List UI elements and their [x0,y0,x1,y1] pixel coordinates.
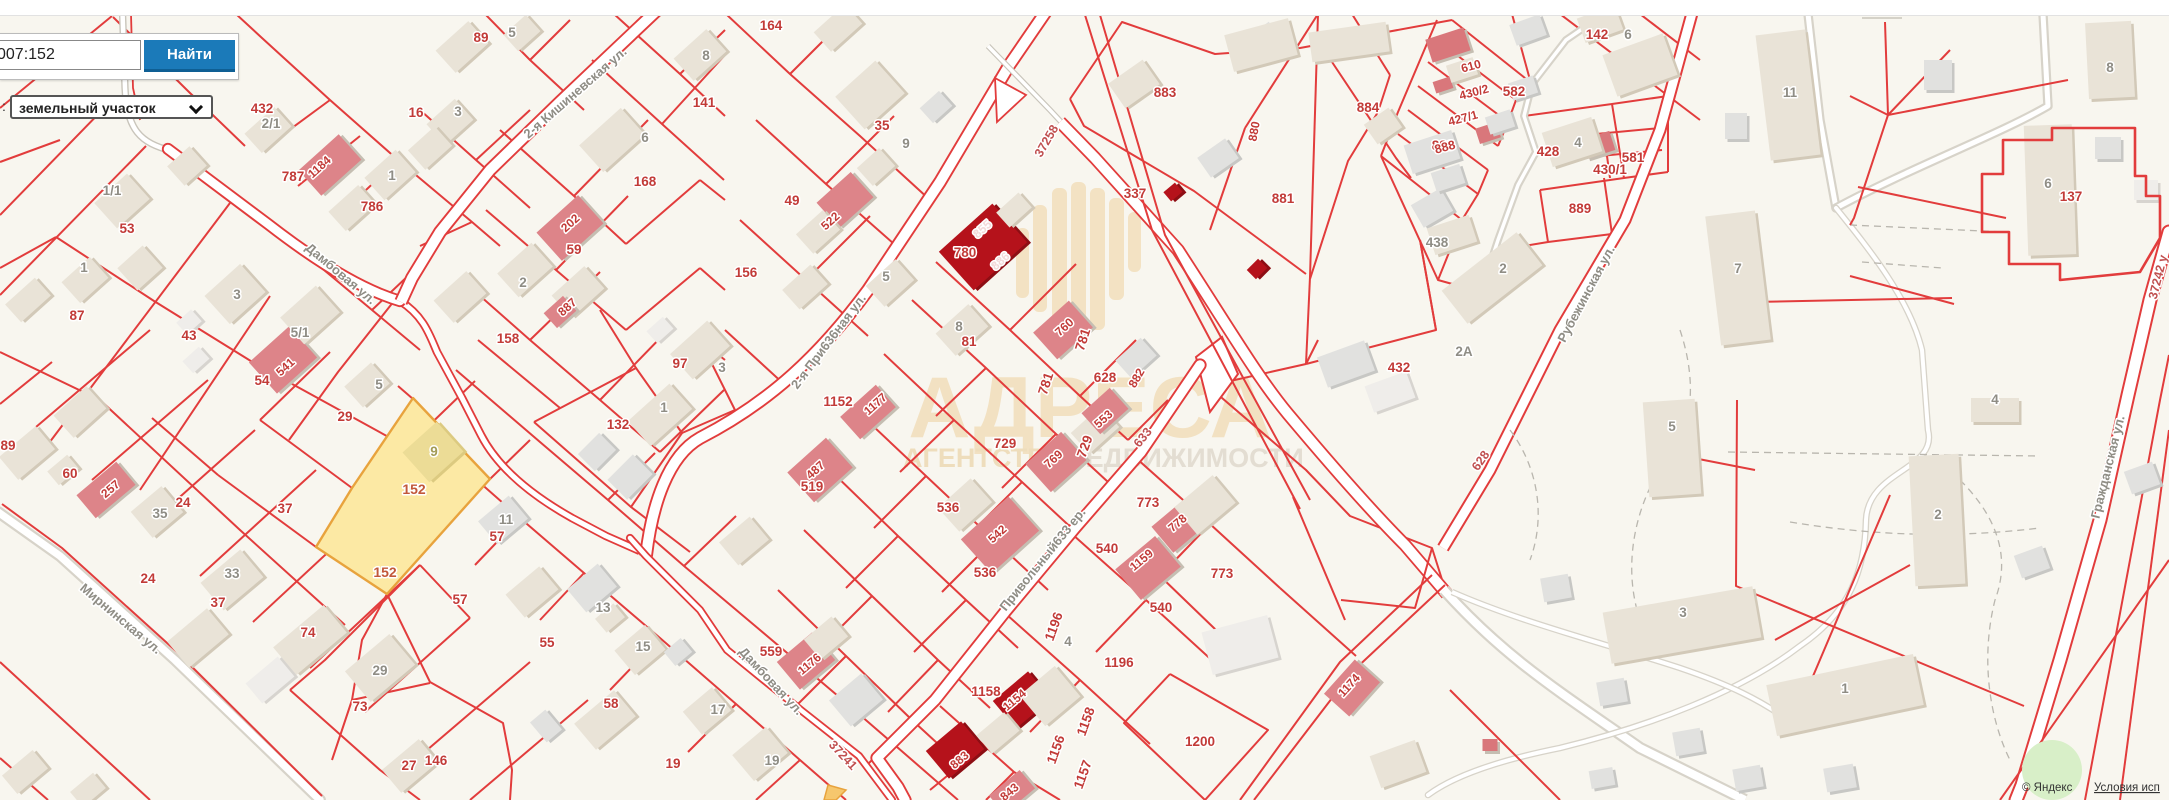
svg-text:89: 89 [0,438,15,453]
svg-text:15: 15 [635,639,651,654]
svg-text:3: 3 [454,104,462,119]
svg-text:87: 87 [69,308,84,323]
svg-text:29: 29 [337,409,352,424]
svg-text:81: 81 [961,334,977,349]
svg-text:1152: 1152 [823,394,852,409]
svg-text:49: 49 [784,193,799,208]
svg-text:3: 3 [718,360,726,375]
svg-text:8: 8 [2106,60,2114,75]
svg-text:2: 2 [1499,261,1507,276]
svg-text:5: 5 [882,269,890,284]
svg-text:582: 582 [1503,84,1526,99]
svg-text:57: 57 [452,592,467,607]
svg-text:132: 132 [607,417,630,432]
svg-text:6: 6 [1624,27,1632,42]
svg-text:24: 24 [175,495,191,510]
svg-text:152: 152 [402,481,426,497]
svg-text:729: 729 [994,436,1017,451]
svg-text:1: 1 [1841,681,1849,696]
svg-text:Условия исп: Условия исп [2094,782,2160,794]
svg-text:137: 137 [2060,189,2083,204]
svg-text:1: 1 [80,260,88,275]
svg-text:60: 60 [62,466,77,481]
svg-text:1: 1 [388,168,396,183]
svg-text:146: 146 [425,753,448,768]
svg-text:884: 884 [1357,100,1380,115]
svg-text:17: 17 [710,702,725,717]
svg-text:1: 1 [660,400,668,415]
svg-text:432: 432 [251,101,274,116]
svg-text:4: 4 [1064,634,1072,649]
svg-text:430/1: 430/1 [1593,162,1627,177]
svg-text:89: 89 [473,30,488,45]
svg-text:536: 536 [974,565,997,580]
svg-text:3: 3 [1679,605,1687,620]
svg-text:19: 19 [665,756,680,771]
svg-text:883: 883 [1154,85,1177,100]
svg-text:780: 780 [954,245,977,260]
svg-text:35: 35 [874,118,890,133]
svg-text:33: 33 [224,566,240,581]
svg-text:8: 8 [702,48,710,63]
svg-text:2: 2 [1934,507,1942,522]
svg-text:11: 11 [1783,85,1798,100]
svg-text:158: 158 [497,331,520,346]
svg-text:881: 881 [1272,191,1295,206]
svg-text:438: 438 [1426,235,1449,250]
svg-text:628: 628 [1094,370,1117,385]
svg-text:152: 152 [373,564,397,580]
svg-text:432: 432 [1388,360,1411,375]
svg-text:4: 4 [1574,135,1582,150]
svg-text:2A: 2A [1455,344,1473,359]
svg-text:9: 9 [902,136,910,151]
svg-text:773: 773 [1137,495,1160,510]
svg-text:11: 11 [499,512,514,527]
svg-text:3: 3 [233,287,241,302]
svg-text:6: 6 [641,130,649,145]
svg-text:24: 24 [140,571,156,586]
svg-text:53: 53 [119,221,135,236]
svg-text:1158: 1158 [971,684,1001,699]
svg-text:164: 164 [760,18,783,33]
svg-text:7: 7 [1734,261,1742,276]
svg-text:2/1: 2/1 [262,116,281,131]
svg-text:97: 97 [672,356,687,371]
svg-text:57: 57 [489,529,504,544]
svg-text:889: 889 [1569,201,1592,216]
svg-text:2: 2 [519,275,527,290]
svg-text:13: 13 [595,600,611,615]
svg-text:168: 168 [634,174,657,189]
svg-text:16: 16 [408,105,424,120]
svg-text:54: 54 [254,373,270,388]
svg-text:73: 73 [352,699,368,714]
svg-text:58: 58 [603,696,619,711]
svg-text:29: 29 [372,663,387,678]
svg-text:1196: 1196 [1104,655,1134,670]
svg-text:1200: 1200 [1185,734,1215,749]
svg-text:156: 156 [735,265,758,280]
svg-text:© Яндекс: © Яндекс [2022,782,2073,794]
svg-text:5: 5 [375,377,383,392]
svg-text:43: 43 [181,328,197,343]
svg-text:4: 4 [1991,392,1999,407]
svg-text:37: 37 [210,595,225,610]
svg-text:27: 27 [401,758,416,773]
svg-text:337: 337 [1124,186,1147,201]
svg-text:5: 5 [508,25,516,40]
svg-text:5: 5 [1668,419,1676,434]
svg-text:6: 6 [2044,176,2052,191]
svg-text:35: 35 [152,506,168,521]
svg-text:536: 536 [937,500,960,515]
svg-text:141: 141 [693,95,716,110]
svg-text:8: 8 [955,319,963,334]
svg-text:428: 428 [1537,144,1560,159]
svg-text:9: 9 [430,444,438,459]
svg-text:59: 59 [566,242,581,257]
svg-text:74: 74 [300,625,316,640]
svg-text:19: 19 [764,753,779,768]
svg-text:540: 540 [1096,541,1119,556]
svg-text:773: 773 [1211,566,1234,581]
svg-text:55: 55 [539,635,555,650]
svg-text:559: 559 [760,644,783,659]
svg-text:1/1: 1/1 [103,183,122,198]
svg-text:540: 540 [1150,600,1173,615]
svg-text:142: 142 [1586,27,1609,42]
svg-text:786: 786 [361,199,384,214]
svg-text:5/1: 5/1 [291,325,310,340]
svg-text:37: 37 [277,501,292,516]
svg-text:787: 787 [282,169,305,184]
